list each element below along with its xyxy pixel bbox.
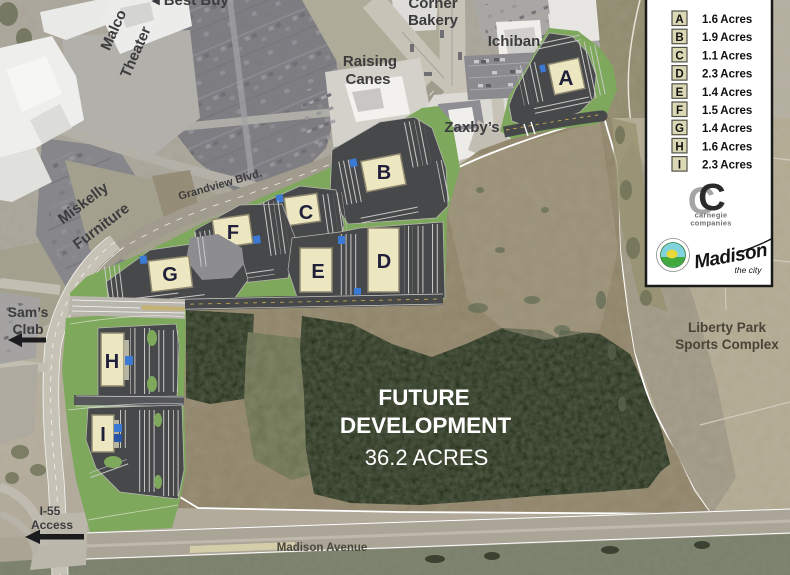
svg-text:A: A <box>675 14 683 26</box>
svg-text:G: G <box>675 123 684 135</box>
svg-text:1.1 Acres: 1.1 Acres <box>702 50 752 62</box>
svg-text:Madison Avenue: Madison Avenue <box>277 542 368 554</box>
svg-text:G: G <box>162 264 178 286</box>
svg-text:D: D <box>377 251 391 273</box>
svg-text:2.3 Acres: 2.3 Acres <box>702 160 752 172</box>
svg-text:Sports Complex: Sports Complex <box>675 337 779 352</box>
svg-text:Club: Club <box>12 321 43 337</box>
svg-text:1.4 Acres: 1.4 Acres <box>702 123 752 135</box>
svg-text:H: H <box>675 141 683 153</box>
svg-text:H: H <box>105 351 119 373</box>
svg-text:B: B <box>377 162 391 184</box>
svg-text:Access: Access <box>31 518 73 532</box>
svg-text:A: A <box>558 67 573 90</box>
svg-text:FUTURE: FUTURE <box>378 385 469 410</box>
svg-text:Corner: Corner <box>408 0 457 12</box>
svg-text:1.5 Acres: 1.5 Acres <box>702 105 752 117</box>
svg-text:1.9 Acres: 1.9 Acres <box>702 32 752 44</box>
svg-text:companies: companies <box>690 219 731 228</box>
svg-text:Canes: Canes <box>345 71 390 88</box>
svg-text:1.6 Acres: 1.6 Acres <box>702 14 752 26</box>
svg-text:2.3 Acres: 2.3 Acres <box>702 69 752 81</box>
svg-text:I: I <box>100 424 106 446</box>
svg-text:1.4 Acres: 1.4 Acres <box>702 87 752 99</box>
svg-text:I: I <box>678 160 681 172</box>
svg-text:E: E <box>676 87 684 99</box>
svg-text:Zaxby’s: Zaxby’s <box>444 119 499 136</box>
svg-text:E: E <box>311 261 324 283</box>
svg-text:Ichiban: Ichiban <box>488 33 541 50</box>
svg-text:Bakery: Bakery <box>408 12 459 29</box>
svg-text:Liberty Park: Liberty Park <box>688 320 767 335</box>
svg-text:◂ Best Buy: ◂ Best Buy <box>151 0 229 9</box>
svg-text:F: F <box>676 105 683 117</box>
svg-text:I-55: I-55 <box>40 504 61 518</box>
svg-text:DEVELOPMENT: DEVELOPMENT <box>340 413 512 438</box>
svg-text:36.2 ACRES: 36.2 ACRES <box>365 445 489 470</box>
svg-text:B: B <box>675 32 683 44</box>
svg-text:Raising: Raising <box>343 53 397 70</box>
svg-text:1.6 Acres: 1.6 Acres <box>702 141 752 153</box>
svg-text:the city: the city <box>735 265 763 275</box>
svg-text:C: C <box>299 202 313 224</box>
svg-text:D: D <box>675 69 683 81</box>
svg-text:Sam’s: Sam’s <box>8 304 49 320</box>
svg-text:C: C <box>675 50 683 62</box>
